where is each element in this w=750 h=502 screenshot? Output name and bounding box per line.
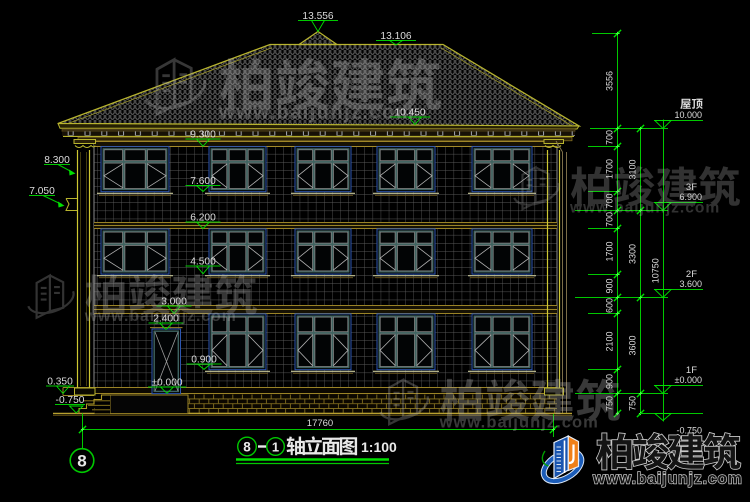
svg-text:1:100: 1:100: [361, 439, 397, 455]
svg-text:±0.000: ±0.000: [675, 375, 702, 385]
svg-text:3556: 3556: [605, 71, 615, 91]
svg-text:www.baijunjz.com: www.baijunjz.com: [439, 413, 599, 432]
svg-text:600: 600: [605, 298, 615, 313]
svg-text:3.600: 3.600: [679, 279, 702, 289]
svg-text:2F: 2F: [686, 269, 697, 280]
svg-text:900: 900: [605, 278, 615, 293]
svg-text:www.baijunjz.com: www.baijunjz.com: [569, 199, 720, 216]
svg-text:750: 750: [628, 396, 638, 411]
svg-text:www.baijunjz.com: www.baijunjz.com: [218, 101, 415, 123]
svg-text:8: 8: [77, 452, 86, 471]
svg-text:2100: 2100: [605, 331, 615, 351]
svg-text:8: 8: [243, 440, 251, 455]
svg-text:10750: 10750: [651, 258, 661, 283]
svg-text:17760: 17760: [307, 418, 333, 429]
svg-text:1700: 1700: [605, 241, 615, 261]
svg-text:1F: 1F: [686, 365, 697, 376]
svg-text:10.000: 10.000: [674, 110, 702, 120]
svg-text:3300: 3300: [628, 244, 638, 264]
svg-text:3600: 3600: [628, 335, 638, 355]
svg-text:www.baijunjz.com: www.baijunjz.com: [84, 308, 237, 325]
svg-text:1: 1: [272, 440, 279, 455]
svg-text:www.baijunjz.com: www.baijunjz.com: [592, 471, 743, 488]
svg-text:700: 700: [605, 130, 615, 145]
